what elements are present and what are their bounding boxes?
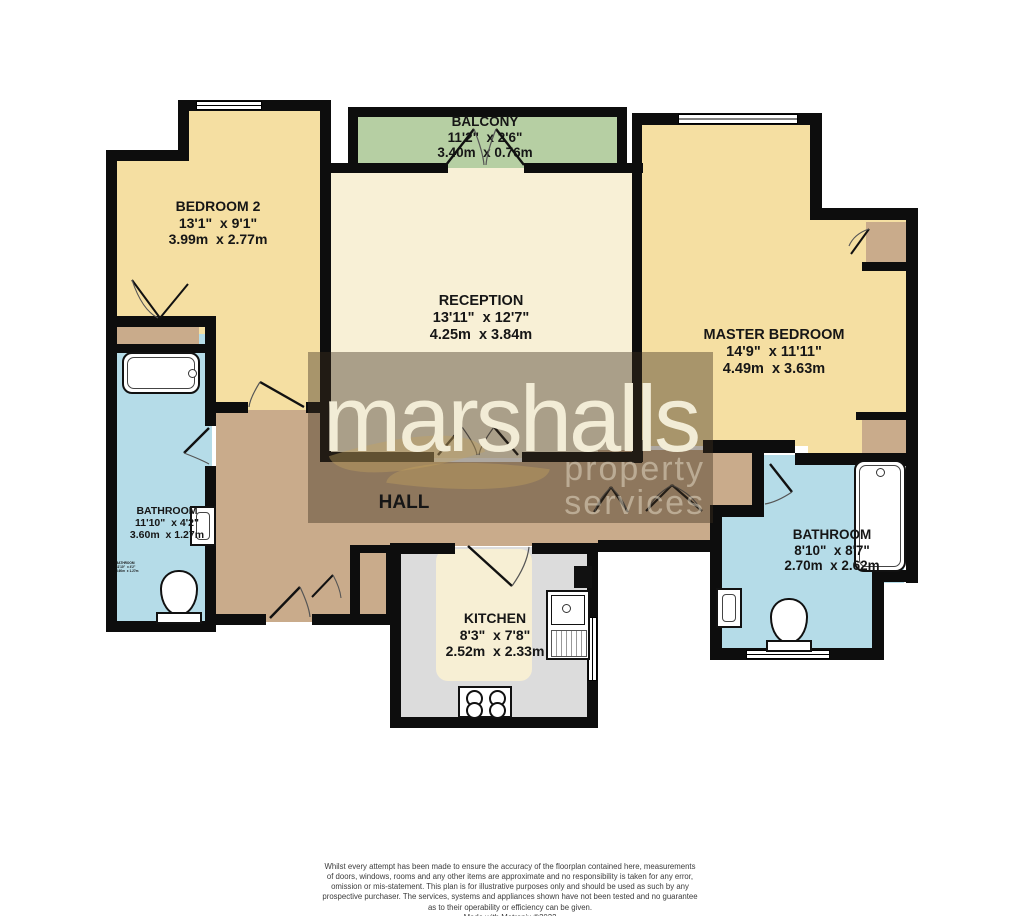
decor [333,575,341,598]
decor [300,587,310,617]
decor [312,575,333,597]
floorplan-canvas: marshalls property services BALCONY 11'2… [0,0,1020,916]
decor [184,453,209,464]
decor [446,129,524,165]
decor [765,492,792,504]
room-name: HALL [329,492,479,514]
label-hall: HALL [329,492,479,514]
decor [770,464,792,492]
decor [249,382,260,407]
decor [468,546,512,586]
decor [184,428,209,453]
decor [474,129,496,165]
decor [270,587,300,618]
decor [512,547,529,586]
decor [260,382,304,407]
